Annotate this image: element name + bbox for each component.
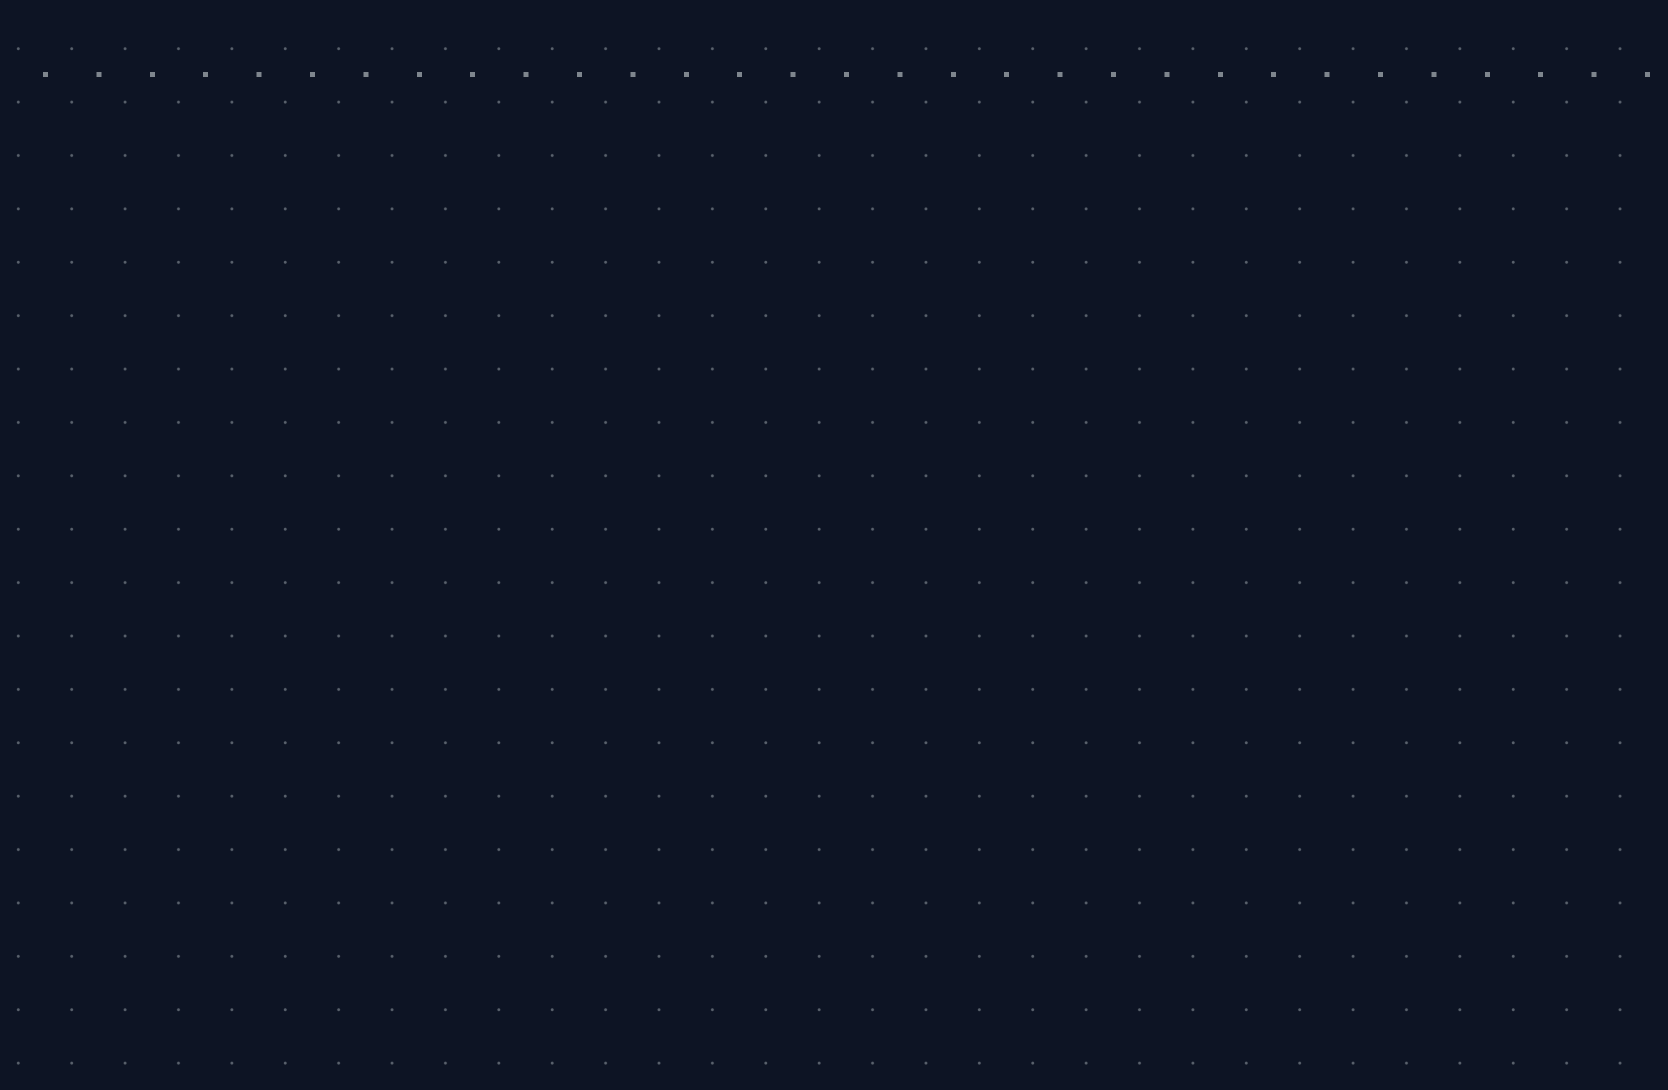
grid-major-row bbox=[43, 72, 1668, 77]
copper-layer bbox=[0, 0, 1668, 1090]
overlay-layer bbox=[0, 0, 1668, 1090]
pcb-canvas[interactable] bbox=[0, 0, 1668, 1090]
